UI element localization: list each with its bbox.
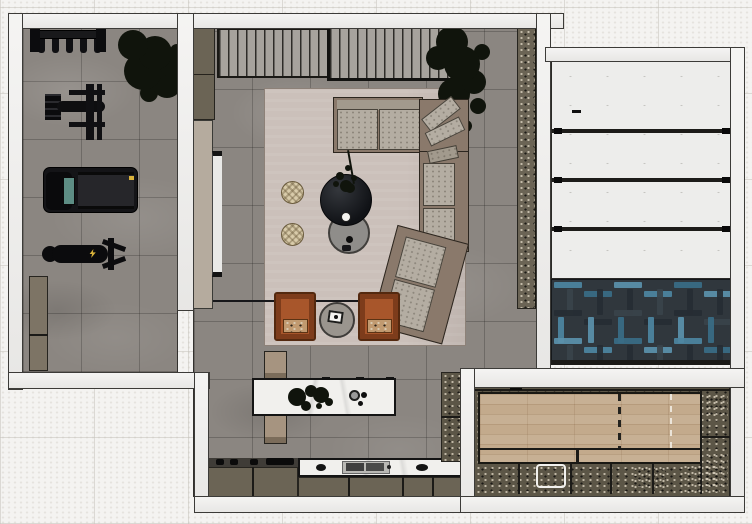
wall-partition-gym bbox=[177, 13, 194, 311]
sofa-cushion bbox=[423, 163, 455, 206]
games-right-shelf-line bbox=[702, 436, 730, 438]
garage-herringbone-floor bbox=[551, 279, 731, 364]
gray-table-item bbox=[342, 245, 351, 251]
wall-left bbox=[8, 13, 23, 390]
chair-seat-cushion bbox=[367, 319, 392, 333]
treadmill-console bbox=[63, 177, 75, 205]
treadmill bbox=[43, 167, 138, 213]
treadmill-belt bbox=[78, 172, 134, 209]
wall-top bbox=[8, 13, 564, 29]
wood-connector bbox=[576, 448, 579, 463]
parquet-strip bbox=[674, 338, 702, 344]
chair-seat-cushion bbox=[283, 319, 308, 333]
leather-lounge-chair-2 bbox=[358, 292, 400, 341]
wall-gym-bottom bbox=[8, 372, 210, 389]
lane-center-dashed-line bbox=[618, 394, 621, 448]
panel-seam bbox=[552, 129, 732, 133]
tall-cabinet-column-east bbox=[517, 28, 537, 309]
cabinet-divider bbox=[29, 334, 48, 336]
rack-endplate bbox=[96, 28, 106, 52]
rack-endplate bbox=[30, 28, 40, 52]
rack-bar bbox=[30, 30, 106, 39]
wall-living-right bbox=[536, 13, 551, 374]
wall-bottom-center bbox=[194, 496, 476, 513]
machine-crossbar bbox=[69, 90, 105, 95]
seam-cap bbox=[722, 177, 730, 183]
wall-games-left bbox=[460, 368, 475, 513]
wicker-pouf-1 bbox=[281, 181, 304, 204]
parquet-strip bbox=[674, 282, 702, 288]
seam-cap bbox=[554, 177, 562, 183]
cabinet-divider bbox=[348, 477, 350, 497]
gray-table-item bbox=[346, 236, 353, 243]
dumbbell-rack bbox=[30, 28, 106, 57]
sofa-cushion bbox=[379, 109, 420, 150]
griddle bbox=[266, 458, 294, 465]
dumbbell bbox=[52, 39, 59, 53]
parquet-strip bbox=[588, 317, 594, 343]
potted-tree-gym bbox=[118, 30, 148, 60]
island-grinder bbox=[358, 401, 363, 406]
wall-games-top bbox=[460, 368, 745, 388]
cable-strength-machine bbox=[43, 84, 113, 140]
island-grinder bbox=[349, 390, 360, 401]
seam-cap bbox=[554, 226, 562, 232]
panel-handle-mark bbox=[572, 110, 581, 113]
lane-light-dashed-line bbox=[670, 394, 672, 448]
sofa-cushion bbox=[337, 109, 378, 150]
games-decor-bottom-1 bbox=[632, 466, 666, 490]
wicker-pouf-2 bbox=[281, 223, 304, 246]
wall-kitchen-left bbox=[194, 372, 209, 513]
island-edge-tick bbox=[322, 377, 330, 380]
garage-panel-door bbox=[551, 61, 731, 279]
parquet-strip bbox=[554, 310, 582, 316]
games-bottom-divider bbox=[610, 464, 612, 494]
wall-garage-top bbox=[545, 47, 745, 62]
tall-cabinets-northwest bbox=[193, 28, 215, 120]
weight-bench bbox=[42, 238, 126, 270]
burner bbox=[230, 459, 238, 465]
garage-floor-threshold bbox=[551, 360, 731, 365]
potted-tree-living bbox=[436, 26, 468, 58]
wall-tv bbox=[212, 151, 222, 277]
island-bench-south bbox=[264, 415, 287, 444]
dumbbell bbox=[80, 39, 87, 53]
wood-inner-line bbox=[480, 448, 700, 450]
cabinet-divider bbox=[252, 467, 254, 497]
parquet-strip bbox=[554, 338, 582, 344]
table-plant bbox=[340, 180, 352, 192]
framed-media-unit bbox=[327, 21, 457, 81]
cabinet-divider bbox=[402, 477, 404, 497]
cabinet-divider bbox=[441, 416, 462, 418]
counter-item bbox=[416, 464, 428, 471]
white-tray bbox=[536, 464, 566, 488]
parquet-strip bbox=[614, 310, 642, 316]
burner bbox=[216, 459, 224, 465]
parquet-strip bbox=[614, 338, 642, 344]
panel-seam bbox=[552, 178, 732, 182]
games-bottom-divider bbox=[518, 464, 520, 494]
games-bottom-divider bbox=[570, 464, 572, 494]
faucet bbox=[387, 465, 391, 469]
floor-plan-canvas[interactable] bbox=[0, 0, 752, 524]
leather-lounge-chair-1 bbox=[274, 292, 316, 341]
parquet-strip bbox=[597, 289, 603, 315]
parquet-strip bbox=[648, 317, 654, 343]
island-edge-tick bbox=[386, 377, 394, 380]
marble-island bbox=[252, 378, 396, 416]
counter-item bbox=[316, 464, 326, 471]
dumbbell bbox=[66, 39, 73, 53]
games-decor-bottom-2 bbox=[682, 464, 720, 492]
burner bbox=[250, 459, 258, 465]
wall-games-bottom bbox=[460, 496, 745, 513]
island-edge-tick bbox=[356, 377, 364, 380]
sliding-door-panel bbox=[193, 120, 213, 309]
sink-basin bbox=[366, 463, 384, 471]
base-cabinet-row bbox=[298, 477, 462, 497]
sink-basin bbox=[346, 463, 364, 471]
treadmill-logo bbox=[129, 176, 134, 180]
coffee-cup bbox=[341, 212, 351, 222]
parquet-strip bbox=[708, 317, 714, 343]
island-decor-cluster bbox=[288, 388, 306, 406]
bench-pad bbox=[52, 245, 108, 263]
parquet-strip bbox=[717, 289, 723, 315]
side-table-dot bbox=[334, 315, 338, 319]
seam-cap bbox=[722, 128, 730, 134]
parquet-strip bbox=[614, 282, 642, 288]
games-decor-right-1 bbox=[704, 394, 728, 416]
panel-seam bbox=[552, 227, 732, 231]
parquet-strip bbox=[674, 310, 702, 316]
parquet-strip bbox=[554, 282, 582, 288]
gym-wall-cabinet bbox=[29, 276, 48, 371]
cabinet-divider bbox=[432, 477, 434, 497]
seam-cap bbox=[554, 128, 562, 134]
wall-right bbox=[730, 47, 745, 513]
island-bench-north bbox=[264, 351, 287, 380]
island-grinder bbox=[361, 392, 367, 398]
parquet-strip bbox=[657, 289, 663, 315]
games-room-wood-floor bbox=[478, 392, 702, 464]
seam-cap bbox=[722, 226, 730, 232]
machine-crossbar bbox=[69, 122, 105, 127]
